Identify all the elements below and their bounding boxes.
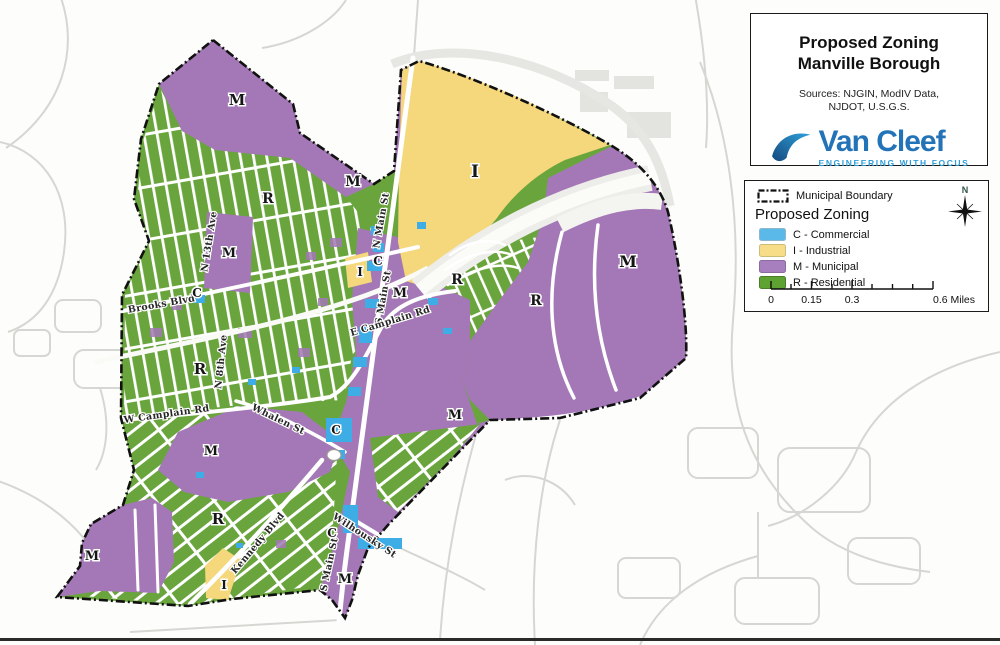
svg-text:0.3: 0.3 bbox=[845, 294, 860, 306]
legend-boundary-row: Municipal Boundary bbox=[757, 189, 893, 203]
svg-text:0: 0 bbox=[768, 294, 774, 306]
svg-text:0.6 Miles: 0.6 Miles bbox=[933, 294, 975, 306]
zone-label: M bbox=[448, 408, 462, 423]
zone-label: M bbox=[345, 174, 361, 190]
north-arrow: N bbox=[945, 184, 987, 230]
legend: Municipal Boundary Proposed Zoning C - C… bbox=[744, 180, 989, 312]
legend-item-industrial: I - Industrial bbox=[759, 244, 850, 257]
legend-heading: Proposed Zoning bbox=[755, 206, 869, 223]
map-title-line2: Manville Borough bbox=[751, 53, 987, 74]
zone-label: M bbox=[204, 444, 218, 459]
zone-label: I bbox=[357, 265, 363, 279]
route-shield bbox=[327, 450, 341, 461]
zone-label: M bbox=[85, 549, 99, 564]
logo-tagline: ENGINEERING WITH FOCUS bbox=[819, 158, 970, 168]
legend-boundary-label: Municipal Boundary bbox=[796, 190, 893, 202]
neatline-bottom bbox=[0, 638, 1000, 641]
legend-item-municipal: M - Municipal bbox=[759, 260, 858, 273]
sources-note: Sources: NJGIN, ModIV Data, NJDOT, U.S.G… bbox=[751, 88, 987, 115]
map-sheet: Brooks BlvdN 13th AveN 8th AveN Main StS… bbox=[0, 0, 1000, 645]
zone-label: C bbox=[192, 286, 202, 300]
zone-label: M bbox=[229, 91, 246, 109]
zone-label: R bbox=[262, 191, 274, 207]
zone-label: M bbox=[338, 572, 352, 587]
zone-label: R bbox=[194, 360, 207, 378]
zone-label: R bbox=[451, 272, 463, 288]
zone-label: C bbox=[327, 526, 337, 540]
zone-label: I bbox=[221, 578, 227, 592]
zone-label: R bbox=[212, 510, 225, 528]
municipal-swatch-icon bbox=[759, 260, 786, 273]
legend-item-commercial: C - Commercial bbox=[759, 228, 869, 241]
legend-label-commercial: C - Commercial bbox=[793, 229, 869, 241]
commercial-swatch-icon bbox=[759, 228, 786, 241]
svg-text:N: N bbox=[962, 185, 969, 195]
sources-line2: NJDOT, U.S.G.S. bbox=[751, 101, 987, 115]
map-title-line1: Proposed Zoning bbox=[751, 32, 987, 53]
boundary-swatch-icon bbox=[757, 189, 789, 203]
zone-label: M bbox=[619, 252, 637, 271]
zone-label: R bbox=[530, 293, 542, 309]
zone-label: M bbox=[222, 246, 236, 261]
green-grid-patch bbox=[370, 424, 480, 512]
legend-label-industrial: I - Industrial bbox=[793, 245, 850, 257]
zone-label: C bbox=[373, 254, 383, 268]
svg-text:0.15: 0.15 bbox=[801, 294, 822, 306]
logo-wordmark: Van Cleef bbox=[819, 127, 945, 157]
zone-label: C bbox=[331, 423, 341, 437]
legend-label-municipal: M - Municipal bbox=[793, 261, 858, 273]
scale-bar: 0 0.15 0.3 0.6 Miles bbox=[755, 279, 980, 309]
title-block: Proposed Zoning Manville Borough Sources… bbox=[750, 13, 988, 166]
van-cleef-logo: Van Cleef ENGINEERING WITH FOCUS bbox=[751, 127, 987, 168]
sources-line1: Sources: NJGIN, ModIV Data, bbox=[751, 88, 987, 102]
industrial-swatch-icon bbox=[759, 244, 786, 257]
map-title: Proposed Zoning Manville Borough bbox=[751, 32, 987, 75]
zone-label: I bbox=[471, 162, 479, 182]
logo-swoosh-icon bbox=[769, 128, 815, 166]
zone-label: M bbox=[393, 286, 407, 301]
background-blocks bbox=[575, 70, 671, 138]
